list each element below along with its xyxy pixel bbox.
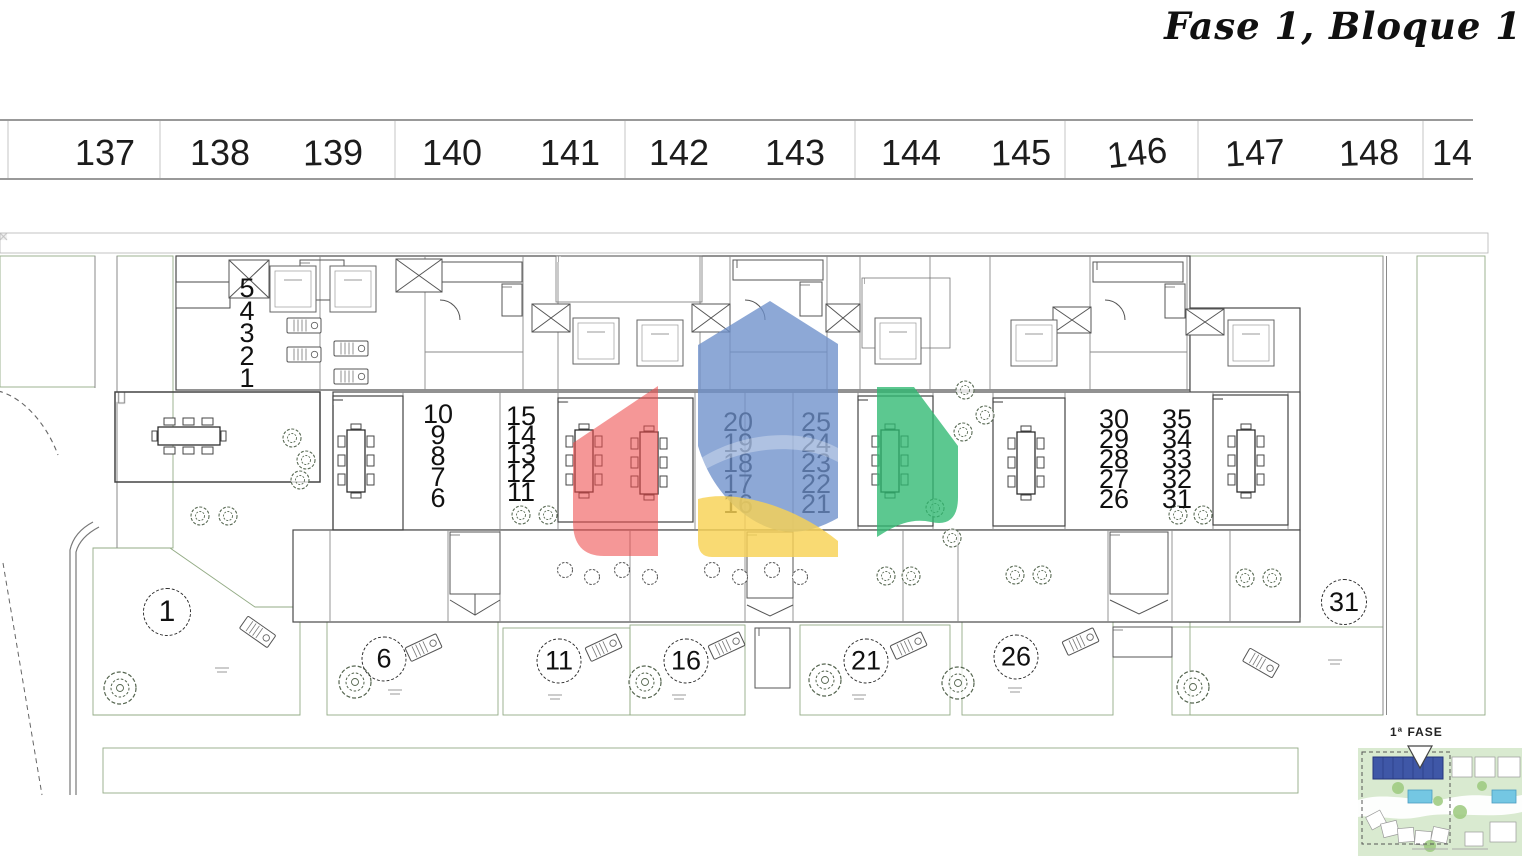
dining-table [1228, 424, 1264, 498]
tree-icon [877, 567, 895, 585]
garden-marker: 6 [362, 637, 407, 682]
tree-icon [902, 567, 920, 585]
minimap-phase-label: 1ª FASE [1390, 725, 1443, 739]
chair-icon [585, 570, 600, 585]
page-title: Fase 1, Bloque 1 [1164, 4, 1522, 48]
lounger-icon [287, 347, 321, 362]
tree-icon [976, 406, 994, 424]
unit-number-column: 30 29 28 27 26 [1099, 409, 1129, 509]
tree-icon [283, 429, 301, 447]
garden-plot-31 [1172, 627, 1383, 715]
dining-table [566, 424, 602, 498]
axis-label: 138 [190, 132, 250, 174]
elevator-shafts [229, 259, 1224, 335]
tree-icon [629, 666, 661, 698]
bedrooms [270, 266, 1274, 366]
axis-label: 144 [881, 132, 941, 174]
lounger-icon [287, 318, 321, 333]
site-minimap [1358, 746, 1522, 856]
tree-icon [1236, 569, 1254, 587]
unit-number-column: 10 9 8 7 6 [423, 404, 453, 509]
tree-icon [191, 507, 209, 525]
minimap-phase-boundary [1362, 752, 1450, 844]
lounger-icon [890, 632, 927, 660]
logo-red-house [573, 386, 658, 556]
axis-label: 146 [1105, 129, 1169, 177]
chair-icon [733, 570, 748, 585]
dining-table [872, 424, 908, 498]
elevator-icon [1186, 309, 1224, 335]
garden-plot-1 [93, 548, 300, 715]
chair-icon [793, 570, 808, 585]
elevator-icon [1053, 307, 1091, 333]
road-strip [0, 233, 1488, 253]
garden-outer-strip [1417, 256, 1485, 715]
chair-icon [558, 563, 573, 578]
minimap-pools [1408, 790, 1516, 803]
axis-label: 14 [1432, 132, 1472, 174]
unit-number-column: 20 19 18 17 16 [723, 412, 753, 515]
dining-table [338, 424, 374, 498]
axis-label: 148 [1338, 131, 1400, 175]
minimap-buildings [1366, 757, 1520, 846]
roads-and-boundaries [0, 256, 1387, 795]
minimap-pointer-icon [1408, 746, 1432, 768]
dining-table [152, 418, 226, 454]
garden-plot-26 [962, 620, 1113, 715]
tree-icon [954, 423, 972, 441]
minimap-greens [1392, 781, 1487, 852]
tree-icon [926, 499, 944, 517]
garden-areas [0, 256, 1485, 793]
lounger-icon [1062, 628, 1099, 656]
chair-icon [643, 570, 658, 585]
tree-icon [104, 672, 136, 704]
tree-icon [943, 529, 961, 547]
garden-marker: 1 [143, 588, 191, 636]
lounger-icon [405, 634, 442, 662]
axis-label: 137 [75, 132, 135, 174]
chair-icon [615, 563, 630, 578]
axis-label: 145 [991, 131, 1052, 174]
axis-label: 140 [422, 132, 482, 174]
tree-icon [809, 664, 841, 696]
garden-marker: 11 [537, 639, 582, 684]
lounger-icon [334, 341, 368, 356]
axis-label: 143 [765, 132, 825, 174]
lounger-icon [585, 634, 622, 662]
tree-icon [956, 381, 974, 399]
axis-label: 142 [649, 132, 709, 174]
elevator-icon [396, 259, 442, 292]
stair-cores [300, 260, 1185, 320]
elevator-icon [826, 304, 860, 332]
dining-table [631, 426, 667, 500]
tree-icon [942, 667, 974, 699]
tree-icon [539, 506, 557, 524]
axis-label: 147 [1224, 130, 1286, 175]
tree-icon [291, 471, 309, 489]
elevator-icon [692, 304, 730, 332]
axis-label: 141 [540, 132, 600, 174]
watermark-logo [0, 0, 1536, 864]
garden-marker: 31 [1321, 579, 1367, 625]
unit-number-column: 25 24 23 22 21 [801, 412, 831, 515]
garden-marker: 26 [994, 635, 1039, 680]
garden-right [1190, 256, 1383, 715]
lounger-icon [239, 616, 275, 648]
unit-number-column: 35 34 33 32 31 [1162, 409, 1192, 509]
garden-bottom-strip [103, 748, 1298, 793]
garden-marker: 16 [664, 639, 709, 684]
tree-icon [1263, 569, 1281, 587]
lounger-icon [334, 369, 368, 384]
unit-number-column: 5 4 3 2 1 [239, 277, 254, 390]
garden-marker: 21 [844, 639, 889, 684]
tree-icon [219, 507, 237, 525]
unit-number-column: 15 14 13 12 11 [506, 407, 536, 502]
dining-table [1008, 426, 1044, 500]
minimap-phase1-building [1373, 757, 1443, 779]
axis-label: 139 [303, 131, 364, 174]
logo-green-house [877, 387, 958, 537]
chair-icon [705, 563, 720, 578]
garden-plot-6 [327, 622, 498, 715]
tree-icon [297, 451, 315, 469]
lounger-icon [708, 632, 745, 660]
lounger-icon [1243, 648, 1280, 678]
site-plan-page: Fase 1, Bloque 1 137 138 139 140 141 142… [0, 0, 1536, 864]
tree-icon [1194, 506, 1212, 524]
tree-icon [1177, 671, 1209, 703]
chair-icon [765, 563, 780, 578]
tree-icon [512, 506, 530, 524]
elevator-icon [532, 304, 570, 332]
tree-icon [1033, 566, 1051, 584]
site-plan-drawing [0, 0, 1536, 864]
tree-icon [1006, 566, 1024, 584]
